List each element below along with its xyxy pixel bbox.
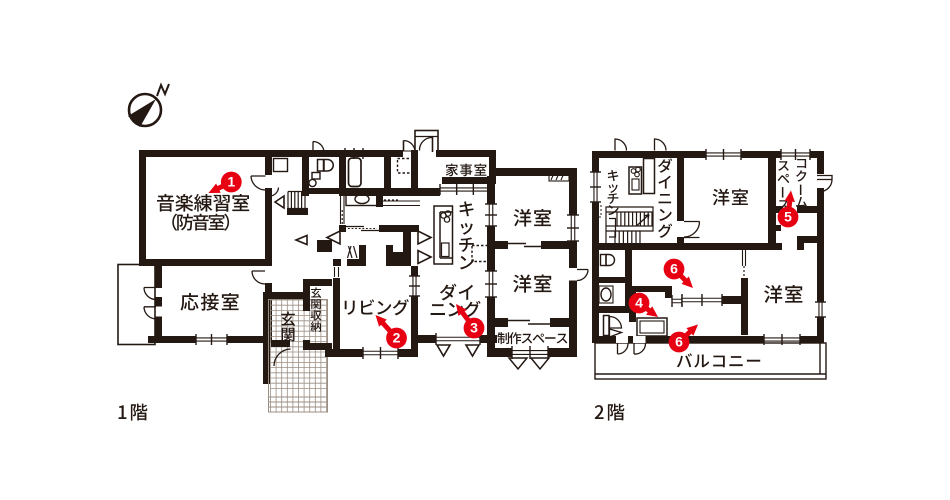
svg-text:4: 4 xyxy=(635,295,643,311)
svg-text:6: 6 xyxy=(670,261,678,277)
svg-text:5: 5 xyxy=(784,209,792,225)
svg-text:6: 6 xyxy=(675,334,683,350)
svg-text:2: 2 xyxy=(393,330,401,346)
svg-text:1: 1 xyxy=(227,174,235,190)
svg-text:3: 3 xyxy=(470,320,478,336)
